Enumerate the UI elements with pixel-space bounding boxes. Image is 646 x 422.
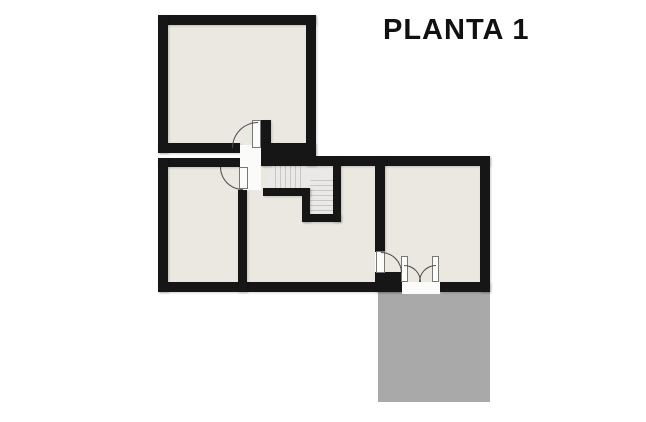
terrace: [378, 290, 490, 402]
wall-segment: [316, 156, 490, 166]
wall-segment: [375, 158, 385, 252]
wall-segment: [158, 158, 240, 167]
floorplan-canvas: PLANTA 1: [0, 0, 646, 422]
room-top-left: [166, 24, 308, 148]
staircase-treads-horizontal: [271, 164, 302, 190]
wall-segment: [480, 156, 490, 292]
wall-segment: [261, 143, 316, 166]
wall-segment: [333, 160, 341, 222]
staircase-treads-vertical: [310, 176, 333, 214]
wall-segment: [158, 143, 240, 153]
wall-segment: [238, 190, 247, 292]
threshold-terrace-door: [402, 282, 440, 294]
floor-title: PLANTA 1: [383, 14, 530, 47]
wall-segment: [158, 15, 316, 25]
wall-segment: [158, 282, 402, 292]
wall-segment: [440, 282, 490, 292]
wall-segment: [158, 15, 168, 153]
wall-segment: [158, 158, 168, 292]
wall-segment: [375, 272, 403, 292]
